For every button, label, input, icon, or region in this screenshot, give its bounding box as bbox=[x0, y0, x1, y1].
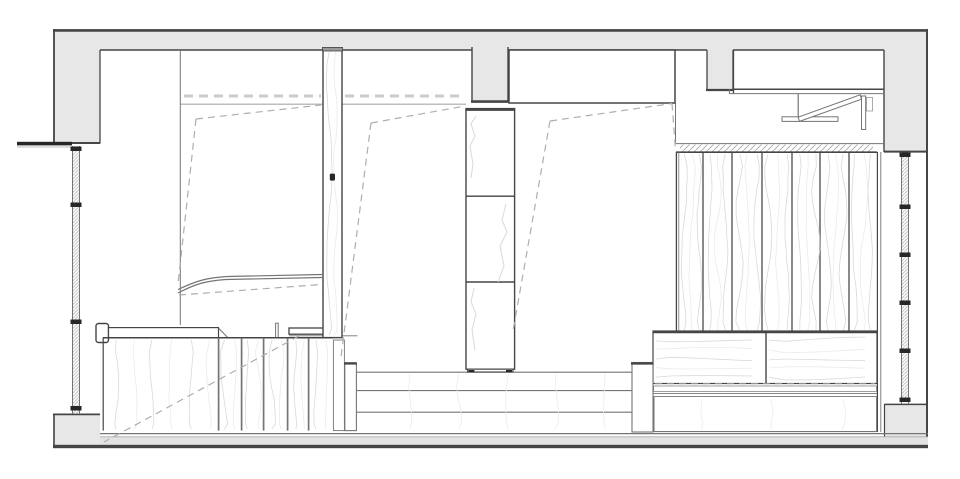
grain-line bbox=[776, 154, 780, 330]
grain-line bbox=[506, 374, 509, 429]
ceiling-slab bbox=[53, 29, 928, 50]
grain-line bbox=[133, 340, 137, 429]
grain-line bbox=[745, 154, 749, 330]
grain-line bbox=[149, 340, 153, 429]
ceiling-feature-lines bbox=[180, 50, 675, 325]
grain-line bbox=[736, 154, 743, 330]
right-ceiling-pillar bbox=[707, 47, 733, 90]
grain-line bbox=[868, 154, 873, 330]
bench-underlayer bbox=[654, 386, 877, 391]
grain-line bbox=[701, 399, 703, 429]
curved-rail bbox=[178, 275, 322, 294]
post-section-hatch bbox=[333, 340, 344, 431]
grain-line bbox=[604, 374, 606, 429]
left-base-cabinet bbox=[103, 338, 357, 431]
window-fitting bbox=[900, 398, 911, 403]
bench-support bbox=[632, 363, 653, 433]
post-hook bbox=[330, 174, 335, 181]
grain-line bbox=[255, 340, 261, 429]
window-fitting bbox=[900, 253, 911, 258]
window-fitting bbox=[71, 147, 82, 152]
grain-line bbox=[833, 154, 838, 330]
window-fitting bbox=[900, 153, 911, 158]
section-drawing bbox=[0, 0, 960, 479]
fold-down-bracket bbox=[782, 94, 873, 130]
left-wall bbox=[53, 29, 100, 144]
insulation-hatch-strip bbox=[676, 144, 884, 152]
grain-line bbox=[555, 374, 558, 429]
window-fitting bbox=[900, 205, 911, 210]
folded-bed-dashed-outline-middle bbox=[341, 106, 465, 357]
right-window bbox=[900, 152, 911, 404]
grain-line bbox=[843, 399, 846, 429]
right-bench bbox=[631, 331, 877, 432]
grain-line bbox=[409, 374, 412, 429]
grain-line bbox=[806, 154, 810, 330]
wood-post bbox=[322, 47, 342, 337]
grain-line bbox=[457, 374, 462, 429]
grain-line bbox=[824, 154, 831, 330]
desk-end-cap bbox=[96, 324, 109, 343]
step-block bbox=[345, 363, 357, 430]
grain-line bbox=[754, 154, 761, 330]
left-sill-block bbox=[53, 414, 100, 446]
post-head bbox=[322, 47, 342, 51]
grain-line bbox=[189, 340, 193, 429]
left-window bbox=[17, 142, 82, 414]
grain-line bbox=[269, 340, 275, 429]
grain-line bbox=[245, 340, 248, 429]
platform-steps bbox=[357, 372, 632, 429]
mid-ceiling-pillar bbox=[472, 47, 508, 102]
right-wall bbox=[884, 29, 928, 152]
grain-line bbox=[798, 154, 802, 330]
grain-line bbox=[115, 340, 119, 429]
wood-grain bbox=[701, 399, 846, 429]
grain-line bbox=[723, 154, 728, 330]
wood-grain bbox=[409, 374, 605, 429]
grain-line bbox=[681, 154, 687, 330]
grain-line bbox=[812, 154, 820, 330]
right-footing-block bbox=[884, 404, 928, 437]
window-fitting bbox=[900, 349, 911, 354]
floor-slab bbox=[53, 434, 928, 449]
grain-line bbox=[689, 154, 695, 330]
grain-line bbox=[314, 340, 318, 429]
wood-grain bbox=[681, 154, 872, 330]
grain-line bbox=[765, 154, 772, 330]
window-fitting bbox=[71, 203, 82, 208]
window-fitting bbox=[71, 406, 82, 411]
support-pin bbox=[276, 323, 279, 338]
grain-line bbox=[714, 154, 721, 330]
timber-slat-wall bbox=[676, 152, 877, 331]
grain-line bbox=[852, 154, 858, 330]
hinge-block bbox=[867, 98, 873, 112]
right-room-bulkhead-box bbox=[509, 50, 675, 103]
right-panel-edge bbox=[877, 152, 880, 432]
grain-line bbox=[301, 340, 305, 429]
left-desk-counter bbox=[109, 328, 219, 338]
window-fitting bbox=[71, 320, 82, 325]
grain-line bbox=[785, 154, 789, 330]
grain-line bbox=[221, 340, 228, 429]
grain-line bbox=[860, 154, 868, 330]
grain-line bbox=[169, 340, 172, 429]
grain-line bbox=[839, 154, 847, 330]
top-right-cabinet bbox=[729, 50, 884, 94]
central-tall-cabinet bbox=[465, 109, 515, 372]
grain-line bbox=[294, 340, 297, 429]
bracket-plate bbox=[862, 96, 866, 130]
wood-grain bbox=[115, 340, 328, 429]
grain-line bbox=[233, 340, 237, 429]
window-head-flashing bbox=[17, 142, 72, 146]
window-fitting bbox=[900, 301, 911, 306]
grain-line bbox=[280, 340, 285, 429]
section-drawing-canvas bbox=[0, 0, 960, 479]
left-desk bbox=[96, 323, 358, 342]
grain-line bbox=[771, 399, 773, 429]
grain-line bbox=[708, 154, 712, 330]
folded-bed-dashed-outline-right bbox=[513, 104, 676, 332]
grain-line bbox=[697, 154, 702, 330]
grain-line bbox=[325, 340, 327, 429]
